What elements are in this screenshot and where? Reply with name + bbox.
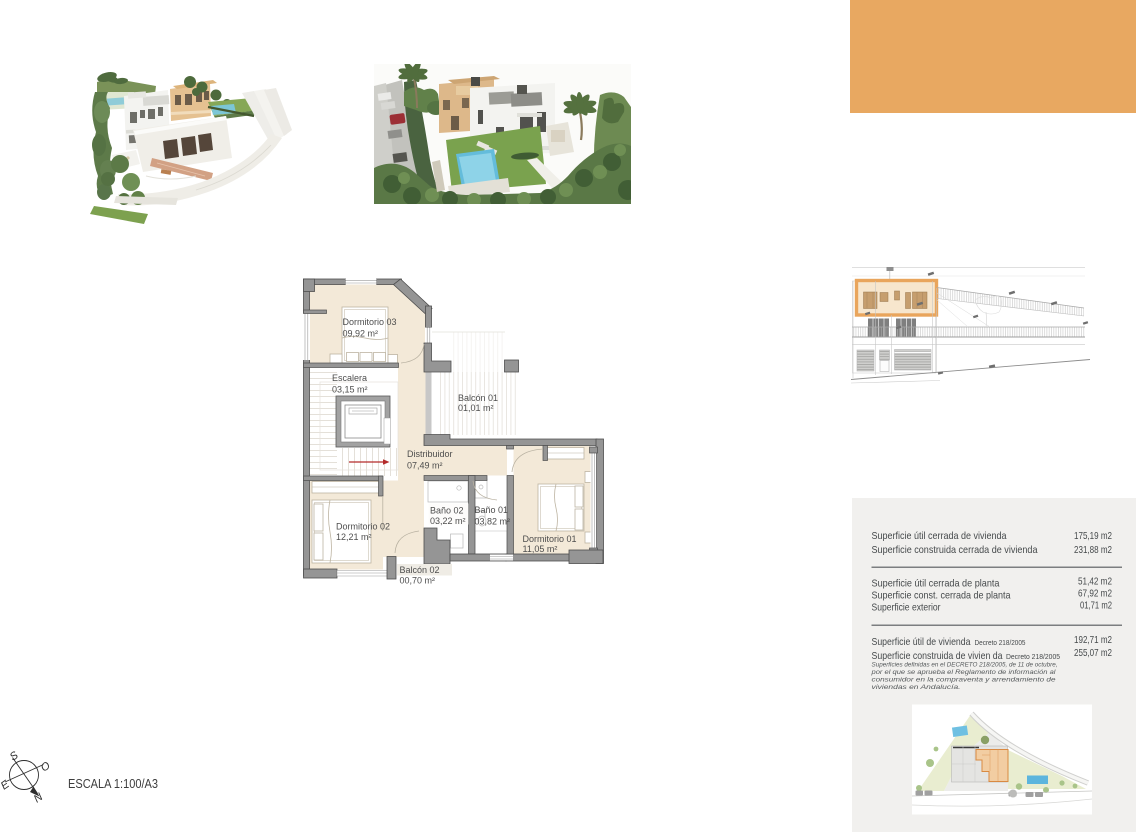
svg-text:Dormitorio 01: Dormitorio 01 (523, 534, 577, 544)
svg-text:09,92 m²: 09,92 m² (343, 329, 379, 339)
svg-text:175,19 m2: 175,19 m2 (1074, 531, 1112, 542)
svg-text:51,42 m2: 51,42 m2 (1078, 577, 1112, 588)
svg-text:Superficie útil de vivienda: Superficie útil de vivienda (872, 637, 971, 648)
svg-text:Superficies definidas en el DE: Superficies definidas en el DECRETO 218/… (872, 662, 1058, 669)
svg-text:03,15 m²: 03,15 m² (332, 385, 368, 395)
svg-text:03,22 m²: 03,22 m² (430, 516, 466, 526)
svg-text:Superficie construida cerrada: Superficie construida cerrada de viviend… (872, 545, 1038, 556)
svg-text:Superficie const. cerrada de p: Superficie const. cerrada de planta (872, 591, 1011, 602)
svg-text:viviendas en Andalucía.: viviendas en Andalucía. (872, 684, 961, 691)
svg-text:Baño 02: Baño 02 (430, 506, 464, 516)
svg-text:67,92 m2: 67,92 m2 (1078, 589, 1112, 600)
svg-text:consumidor en la compraventa y: consumidor en la compraventa y arrendami… (872, 677, 1056, 684)
svg-text:Superficie exterior: Superficie exterior (872, 603, 941, 614)
svg-text:11,05 m²: 11,05 m² (523, 544, 558, 554)
svg-text:Balcón 01: Balcón 01 (458, 393, 498, 403)
svg-text:192,71 m2: 192,71 m2 (1074, 635, 1112, 646)
svg-text:Dormitorio 02: Dormitorio 02 (336, 522, 390, 532)
svg-text:01,01 m²: 01,01 m² (458, 403, 494, 413)
svg-text:07,49 m²: 07,49 m² (407, 461, 443, 471)
svg-text:12,21 m²: 12,21 m² (336, 532, 372, 542)
svg-text:Escalera: Escalera (332, 373, 367, 383)
svg-text:Baño 01: Baño 01 (475, 505, 509, 515)
svg-text:Dormitorio 03: Dormitorio 03 (343, 317, 397, 327)
svg-text:Decreto 218/2005: Decreto 218/2005 (975, 638, 1026, 647)
svg-text:Distribuidor: Distribuidor (407, 449, 453, 459)
svg-text:Decreto 218/2005: Decreto 218/2005 (1006, 652, 1060, 661)
svg-text:Superficie construida de vivie: Superficie construida de vivien da (872, 651, 1003, 662)
svg-text:Superficie útil cerrada de viv: Superficie útil cerrada de vivienda (872, 531, 1007, 542)
svg-text:Balcón 02: Balcón 02 (400, 565, 440, 575)
svg-text:231,88 m2: 231,88 m2 (1074, 545, 1112, 556)
svg-text:Superficie útil cerrada de pla: Superficie útil cerrada de planta (872, 579, 1000, 590)
svg-text:01,71 m2: 01,71 m2 (1080, 601, 1112, 612)
svg-text:03,82 m²: 03,82 m² (475, 517, 511, 527)
svg-text:ESCALA 1:100/A3: ESCALA 1:100/A3 (68, 776, 158, 791)
svg-text:por el que se aprueba el Regla: por el que se aprueba el Reglamento de i… (870, 669, 1056, 676)
svg-text:255,07 m2: 255,07 m2 (1074, 648, 1112, 659)
svg-text:00,70 m²: 00,70 m² (400, 576, 436, 586)
